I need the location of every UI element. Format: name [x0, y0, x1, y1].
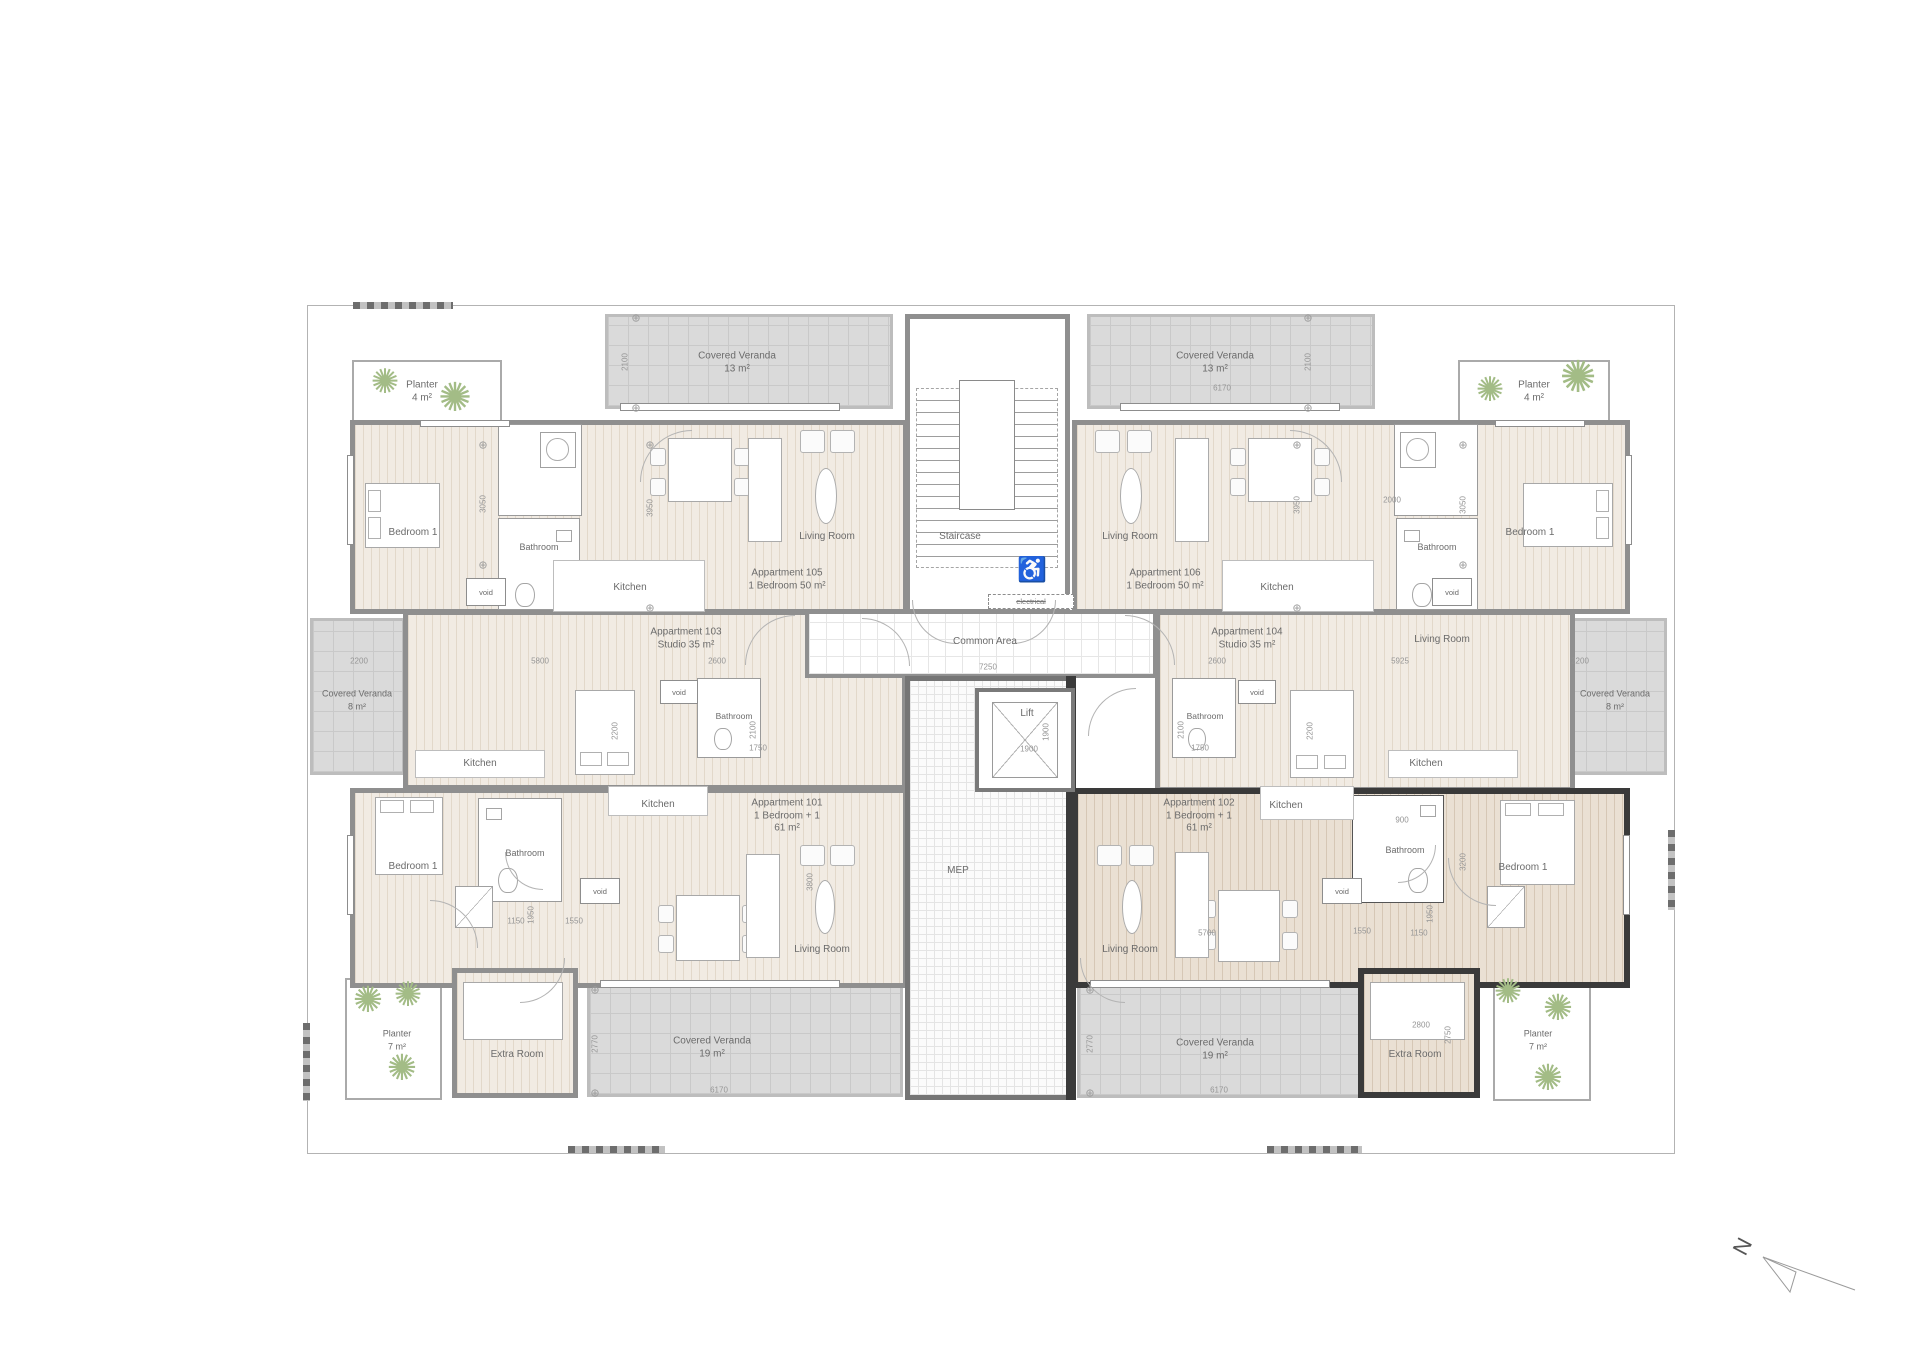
kitchen-104-label: Kitchen — [1409, 758, 1442, 771]
plant-icon: ✺ — [1494, 975, 1523, 1009]
plant-icon: ✺ — [387, 1050, 417, 1086]
window-bedroom-105 — [347, 455, 354, 545]
pillow-icon — [380, 800, 404, 813]
veranda-area: 8 m² — [322, 700, 392, 713]
dim-marker-icon: ⊕ — [1085, 1087, 1094, 1100]
pillow-icon — [368, 490, 381, 512]
room-label: Bathroom — [505, 847, 544, 860]
veranda-area: 13 m² — [698, 363, 776, 376]
dim-label: 2200 — [350, 657, 368, 666]
room-label: Extra Room — [491, 1049, 544, 1062]
dim-label: 1750 — [1191, 744, 1209, 753]
dim-label: 1900 — [1042, 723, 1051, 741]
planter-area: 7 m² — [383, 1040, 412, 1053]
dim-marker-icon: ⊕ — [645, 602, 654, 615]
dim-label: 2600 — [708, 657, 726, 666]
dim-label: 2200 — [1306, 722, 1315, 740]
apartment-area: 61 m² — [751, 822, 822, 835]
toilet-icon — [515, 583, 535, 607]
room-label: Kitchen — [641, 799, 674, 812]
kitchen-101-label: Kitchen — [641, 799, 674, 812]
dim-marker-icon: ⊕ — [478, 559, 487, 572]
bedroom-105-label: Bedroom 1 — [389, 527, 438, 540]
dim-label: 1950 — [1426, 905, 1435, 923]
armchair-icon — [830, 845, 855, 866]
dim-label: 5925 — [1391, 657, 1409, 666]
pillow-icon — [368, 517, 381, 539]
window-planter-right — [1495, 420, 1585, 427]
void-label: void — [1335, 887, 1349, 896]
apartment-type: 1 Bedroom 50 m² — [748, 580, 825, 593]
sink-icon — [486, 808, 502, 820]
armchair-icon — [830, 430, 855, 453]
bedroom-106-label: Bedroom 1 — [1506, 527, 1555, 540]
room-label: Kitchen — [1260, 582, 1293, 595]
pillow-icon — [1296, 755, 1318, 769]
room-label: Kitchen — [1269, 800, 1302, 813]
dim-label: 2200 — [1571, 657, 1589, 666]
veranda-19-left-label: Covered Veranda 19 m² — [673, 1036, 751, 1061]
planter-7-left-label: Planter 7 m² — [383, 1028, 412, 1053]
washer-icon — [540, 432, 576, 468]
veranda-area: 13 m² — [1176, 363, 1254, 376]
dim-label: 2000 — [1383, 496, 1401, 505]
dim-marker-icon: ⊕ — [1292, 602, 1301, 615]
tv-cabinet-icon — [1175, 438, 1209, 542]
north-arrow: N — [1720, 1220, 1870, 1310]
dim-label: 2100 — [1304, 353, 1313, 371]
apartment-103-label: Appartment 103 Studio 35 m² — [650, 627, 721, 652]
window-bedroom-106 — [1625, 455, 1632, 545]
dim-marker-icon: ⊕ — [1458, 559, 1467, 572]
dim-marker-icon: ⊕ — [590, 984, 599, 997]
void-label: void — [1445, 588, 1459, 597]
bathroom-106-label: Bathroom — [1417, 541, 1456, 554]
apartment-104-label: Appartment 104 Studio 35 m² — [1211, 627, 1282, 652]
window-planter-left — [420, 420, 510, 427]
planter-name: Planter — [1524, 1028, 1553, 1041]
pillow-icon — [1596, 517, 1609, 539]
dim-marker-icon: ⊕ — [1085, 984, 1094, 997]
veranda-name: Covered Veranda — [1176, 351, 1254, 364]
dim-label: 2800 — [1412, 1021, 1430, 1030]
lift-label: Lift — [1020, 708, 1033, 721]
staircase-label: Staircase — [939, 531, 981, 544]
extra-room-left-label: Extra Room — [491, 1049, 544, 1062]
kitchen-105-label: Kitchen — [613, 582, 646, 595]
dim-label: 1150 — [507, 917, 524, 926]
roof-tick-bar-bottom-right — [1267, 1146, 1362, 1153]
north-label: N — [1728, 1233, 1758, 1259]
pillow-icon — [580, 752, 602, 766]
plant-icon: ✺ — [1476, 373, 1505, 407]
veranda-area: 19 m² — [673, 1048, 751, 1061]
wheelchair-access-icon: ♿ — [1017, 556, 1047, 585]
common-area-label: Common Area — [953, 636, 1017, 649]
void-label: void — [672, 688, 686, 697]
dim-marker-icon: ⊕ — [590, 1087, 599, 1100]
bathroom-104-label: Bathroom — [1187, 710, 1224, 723]
apartment-106-void: void — [1432, 578, 1472, 606]
coffee-table-icon — [1122, 880, 1142, 934]
sliding-door-veranda19-left — [600, 980, 840, 988]
dining-table-101 — [676, 895, 740, 961]
dim-label: 3050 — [1459, 496, 1468, 514]
living-room-106-label: Living Room — [1102, 531, 1158, 544]
apartment-type: 1 Bedroom + 1 — [751, 810, 822, 823]
veranda-name: Covered Veranda — [322, 688, 392, 701]
dim-label: 2600 — [1208, 657, 1226, 666]
living-room-105-label: Living Room — [799, 531, 855, 544]
dim-label: 2100 — [1177, 721, 1186, 739]
bedroom-102-label: Bedroom 1 — [1499, 862, 1548, 875]
sliding-door-veranda13-left — [620, 403, 840, 411]
apartment-106-label: Appartment 106 1 Bedroom 50 m² — [1126, 568, 1203, 593]
room-label: Living Room — [1102, 944, 1158, 957]
void-label: void — [1250, 688, 1264, 697]
apartment-105-label: Appartment 105 1 Bedroom 50 m² — [748, 568, 825, 593]
pillow-icon — [1596, 490, 1609, 512]
bathroom-105-label: Bathroom — [519, 541, 558, 554]
apartment-name: Appartment 102 — [1163, 797, 1234, 810]
sliding-door-veranda19-right — [1090, 980, 1330, 988]
apartment-name: Appartment 104 — [1211, 627, 1282, 640]
room-label: Kitchen — [463, 758, 496, 771]
dim-label: 5700 — [1198, 929, 1216, 938]
room-label: Common Area — [953, 636, 1017, 649]
planter-4-left-label: Planter 4 m² — [406, 380, 438, 405]
pillow-icon — [1538, 803, 1564, 816]
dim-label: 3950 — [1293, 496, 1302, 514]
veranda-area: 19 m² — [1176, 1050, 1254, 1063]
chair-icon — [1230, 448, 1246, 466]
dim-label: 6170 — [1210, 1086, 1228, 1095]
planter-7-right-label: Planter 7 m² — [1524, 1028, 1553, 1053]
veranda-name: Covered Veranda — [698, 351, 776, 364]
veranda-13-left-label: Covered Veranda 13 m² — [698, 351, 776, 376]
dim-marker-icon: ⊕ — [631, 312, 640, 325]
bathroom-103-label: Bathroom — [716, 710, 753, 723]
armchair-icon — [800, 845, 825, 866]
room-label: Kitchen — [613, 582, 646, 595]
dim-marker-icon: ⊕ — [645, 439, 654, 452]
washer-drum-icon — [546, 438, 568, 460]
dim-label: 1950 — [527, 906, 536, 924]
void-label: void — [479, 588, 493, 597]
extra-room-right-label: Extra Room — [1389, 1049, 1442, 1062]
dim-label: 2770 — [591, 1035, 600, 1053]
dim-label: 7250 — [979, 663, 997, 672]
apartment-type: Studio 35 m² — [650, 639, 721, 652]
apartment-type: 1 Bedroom 50 m² — [1126, 580, 1203, 593]
toilet-icon — [714, 728, 732, 750]
dim-label: 900 — [1395, 816, 1408, 825]
dim-marker-icon: ⊕ — [1292, 439, 1301, 452]
planter-area: 4 m² — [406, 392, 438, 405]
dining-table-102 — [1218, 890, 1280, 962]
room-label: Lift — [1020, 708, 1033, 721]
room-label: MEP — [947, 865, 969, 878]
veranda-name: Covered Veranda — [1580, 688, 1650, 701]
planter-name: Planter — [383, 1028, 412, 1041]
room-label: Bedroom 1 — [1506, 527, 1555, 540]
apartment-104-void: void — [1238, 680, 1276, 704]
north-arrow-graphic: N — [1720, 1220, 1870, 1310]
apartment-101-void: void — [580, 878, 620, 904]
plant-icon: ✺ — [438, 378, 472, 418]
dim-label: 3050 — [479, 495, 488, 513]
apartment-name: Appartment 105 — [748, 568, 825, 581]
veranda-area: 8 m² — [1580, 700, 1650, 713]
armchair-icon — [1097, 845, 1122, 866]
sink-icon — [1420, 805, 1436, 817]
coffee-table-icon — [815, 880, 835, 934]
dim-label: 3950 — [646, 499, 655, 517]
veranda-8-left-label: Covered Veranda 8 m² — [322, 688, 392, 713]
planter-name: Planter — [406, 380, 438, 393]
dim-label: 2200 — [611, 722, 620, 740]
veranda-name: Covered Veranda — [673, 1036, 751, 1049]
chair-icon — [658, 905, 674, 923]
bathroom-102-label: Bathroom — [1385, 844, 1424, 857]
chair-icon — [658, 935, 674, 953]
dim-label: 3800 — [806, 873, 815, 891]
dim-label: 1550 — [565, 917, 583, 926]
apartment-type: Studio 35 m² — [1211, 639, 1282, 652]
roof-tick-bar-bottom-left — [568, 1146, 665, 1153]
room-label: Bathroom — [519, 541, 558, 554]
chair-icon — [1230, 478, 1246, 496]
room-label: Staircase — [939, 531, 981, 544]
toilet-icon — [1412, 583, 1432, 607]
room-label: Living Room — [1414, 634, 1470, 647]
apartment-name: Appartment 106 — [1126, 568, 1203, 581]
mep-label: MEP — [947, 865, 969, 878]
pillow-icon — [410, 800, 434, 813]
tv-cabinet-icon — [746, 854, 780, 958]
room-label: Kitchen — [1409, 758, 1442, 771]
dim-label: 2100 — [621, 353, 630, 371]
coffee-table-icon — [815, 468, 837, 524]
room-label: Bathroom — [1187, 710, 1224, 723]
plant-icon: ✺ — [353, 982, 383, 1018]
pillow-icon — [607, 752, 629, 766]
tv-cabinet-icon — [1175, 852, 1209, 958]
armchair-icon — [1095, 430, 1120, 453]
floor-plan: ♿ electrical void void void void void vo… — [0, 0, 1920, 1358]
pillow-icon — [1324, 755, 1346, 769]
veranda-19-right-label: Covered Veranda 19 m² — [1176, 1038, 1254, 1063]
living-room-101-label: Living Room — [794, 944, 850, 957]
kitchen-102-label: Kitchen — [1269, 800, 1302, 813]
room-label: Living Room — [799, 531, 855, 544]
dim-label: 2770 — [1086, 1035, 1095, 1053]
dim-label: 2750 — [1444, 1026, 1453, 1044]
chair-icon — [1282, 900, 1298, 918]
void-label: void — [593, 887, 607, 896]
veranda-name: Covered Veranda — [1176, 1038, 1254, 1051]
apartment-104-kitchen-counter — [1388, 750, 1518, 778]
dim-marker-icon: ⊕ — [1303, 402, 1312, 415]
apartment-102-label: Appartment 102 1 Bedroom + 1 61 m² — [1163, 797, 1234, 835]
dim-label: 3200 — [1459, 853, 1468, 871]
apartment-102-void: void — [1322, 878, 1362, 904]
dim-label: 2100 — [749, 721, 758, 739]
plant-icon: ✺ — [394, 978, 423, 1012]
planter-area: 7 m² — [1524, 1040, 1553, 1053]
apartment-103-void: void — [660, 680, 698, 704]
dim-label: 6170 — [710, 1086, 728, 1095]
living-room-104-label: Living Room — [1414, 634, 1470, 647]
roof-tick-bar-left — [303, 1023, 310, 1101]
dim-label: 6170 — [1213, 384, 1231, 393]
armchair-icon — [800, 430, 825, 453]
roof-tick-bar-top — [353, 302, 453, 309]
planter-area: 4 m² — [1518, 392, 1550, 405]
dim-marker-icon: ⊕ — [1458, 439, 1467, 452]
room-label: Bathroom — [1417, 541, 1456, 554]
dim-label: 1150 — [1410, 929, 1427, 938]
chair-icon — [1282, 932, 1298, 950]
stair-landing — [959, 380, 1015, 510]
apartment-101-label: Appartment 101 1 Bedroom + 1 61 m² — [751, 797, 822, 835]
room-label: Bathroom — [716, 710, 753, 723]
dim-marker-icon: ⊕ — [1303, 312, 1312, 325]
plant-icon: ✺ — [1560, 356, 1597, 400]
roof-tick-bar-right — [1668, 830, 1675, 910]
washer-icon — [1400, 432, 1436, 468]
window-bedroom-102 — [1623, 835, 1630, 915]
room-label: Bedroom 1 — [389, 527, 438, 540]
apartment-type: 1 Bedroom + 1 — [1163, 810, 1234, 823]
planter-name: Planter — [1518, 380, 1550, 393]
armchair-icon — [1129, 845, 1154, 866]
veranda-8-right-label: Covered Veranda 8 m² — [1580, 688, 1650, 713]
window-bedroom-101 — [347, 835, 354, 915]
apartment-name: Appartment 101 — [751, 797, 822, 810]
bedroom-101-label: Bedroom 1 — [389, 861, 438, 874]
washer-drum-icon — [1406, 438, 1428, 460]
dim-label: 1750 — [749, 744, 767, 753]
kitchen-103-label: Kitchen — [463, 758, 496, 771]
plant-icon: ✺ — [1543, 990, 1573, 1026]
tv-cabinet-icon — [748, 438, 782, 542]
apartment-area: 61 m² — [1163, 822, 1234, 835]
dim-label: 5800 — [531, 657, 549, 666]
dim-label: 1550 — [1353, 927, 1371, 936]
pillow-icon — [1505, 803, 1531, 816]
armchair-icon — [1127, 430, 1152, 453]
living-room-102-label: Living Room — [1102, 944, 1158, 957]
veranda-13-right-label: Covered Veranda 13 m² — [1176, 351, 1254, 376]
room-label: Extra Room — [1389, 1049, 1442, 1062]
apartment-105-void: void — [466, 578, 506, 606]
dim-marker-icon: ⊕ — [478, 439, 487, 452]
plant-icon: ✺ — [1533, 1060, 1563, 1096]
room-label: Bathroom — [1385, 844, 1424, 857]
room-label: Bedroom 1 — [389, 861, 438, 874]
apartment-name: Appartment 103 — [650, 627, 721, 640]
room-label: Living Room — [1102, 531, 1158, 544]
bathroom-101-label: Bathroom — [505, 847, 544, 860]
kitchen-106-label: Kitchen — [1260, 582, 1293, 595]
planter-4-right-label: Planter 4 m² — [1518, 380, 1550, 405]
coffee-table-icon — [1120, 468, 1142, 524]
plant-icon: ✺ — [371, 365, 400, 399]
room-label: Bedroom 1 — [1499, 862, 1548, 875]
dim-label: 1900 — [1020, 745, 1038, 754]
room-label: Living Room — [794, 944, 850, 957]
dim-marker-icon: ⊕ — [631, 402, 640, 415]
